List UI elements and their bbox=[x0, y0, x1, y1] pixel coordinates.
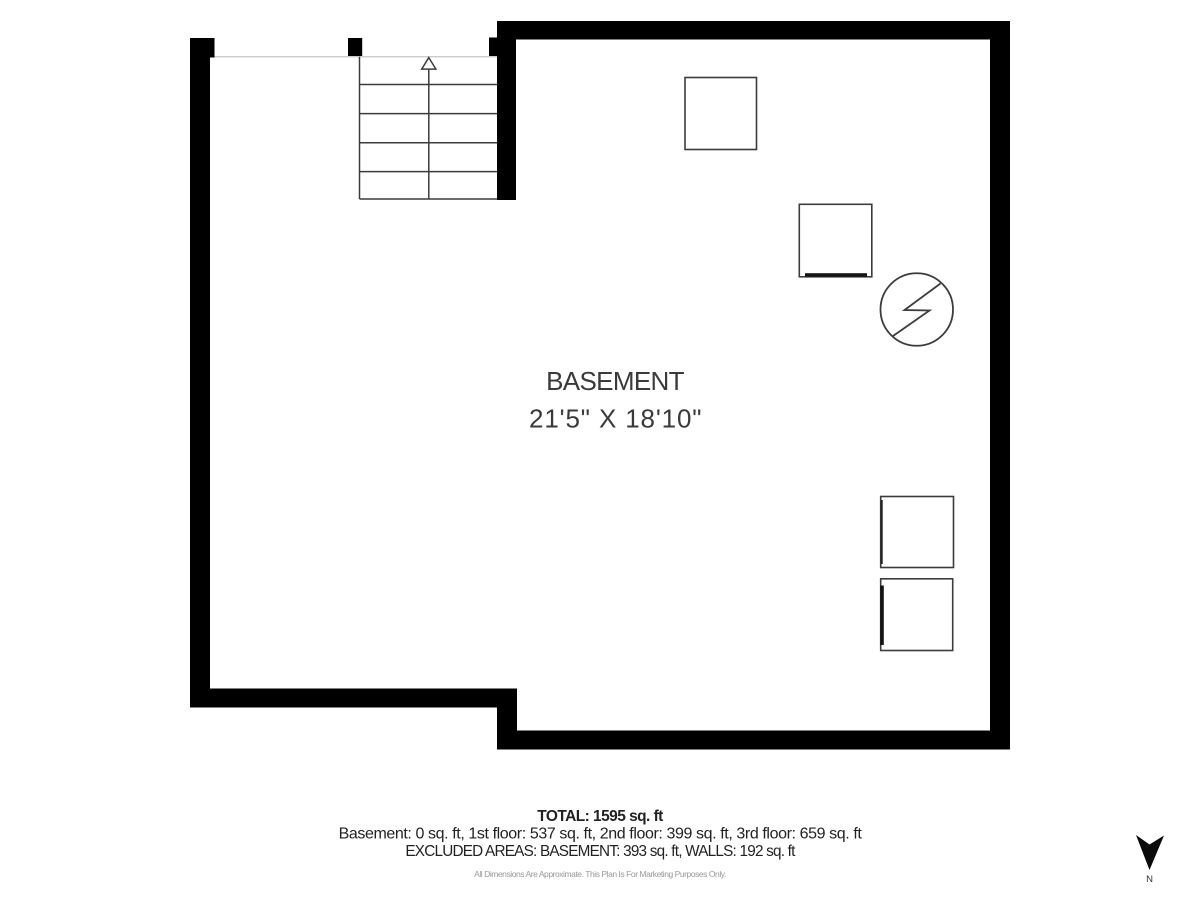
svg-text:All Dimensions Are Approximate: All Dimensions Are Approximate. This Pla… bbox=[474, 869, 726, 879]
svg-text:TOTAL: 1595 sq. ft: TOTAL: 1595 sq. ft bbox=[537, 808, 663, 825]
svg-text:EXCLUDED AREAS: BASEMENT: 393: EXCLUDED AREAS: BASEMENT: 393 sq. ft, WA… bbox=[405, 843, 796, 860]
svg-text:BASEMENT: BASEMENT bbox=[546, 366, 685, 396]
svg-text:21'5" X 18'10": 21'5" X 18'10" bbox=[529, 404, 702, 434]
svg-text:N: N bbox=[1146, 874, 1153, 885]
svg-text:Basement: 0 sq. ft, 1st floor:: Basement: 0 sq. ft, 1st floor: 537 sq. f… bbox=[339, 826, 863, 843]
